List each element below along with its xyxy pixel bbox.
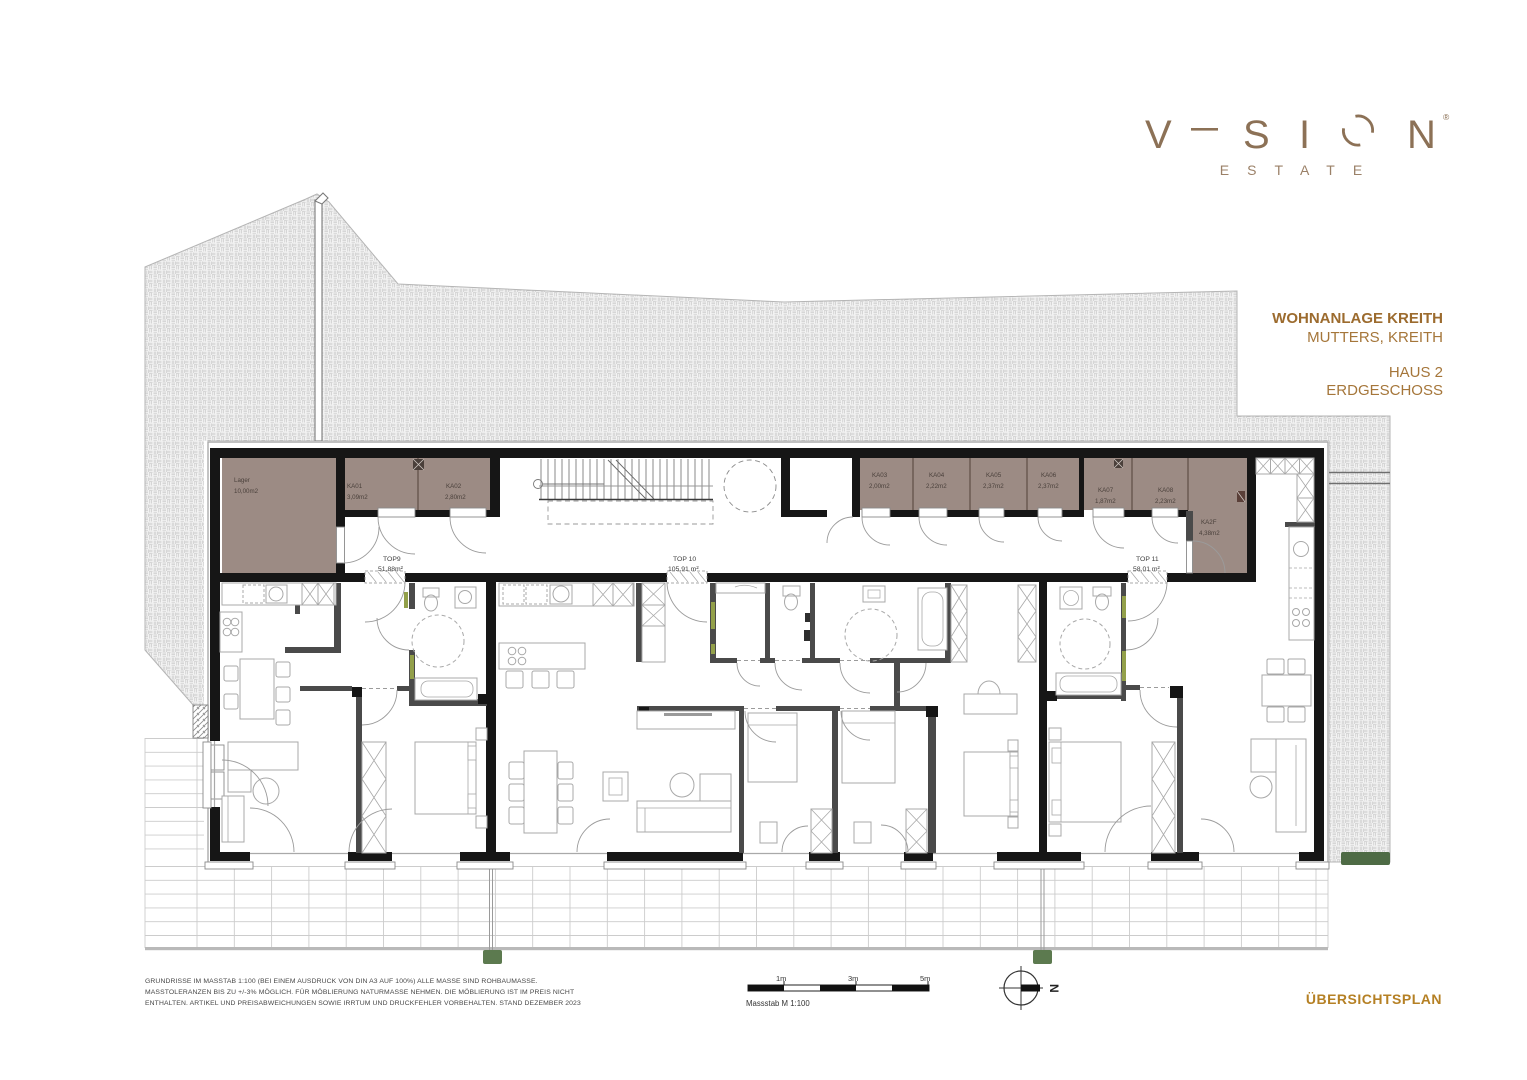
svg-text:2,80m2: 2,80m2	[445, 494, 466, 501]
svg-text:WOHNANLAGE KREITH: WOHNANLAGE KREITH	[1272, 310, 1443, 327]
svg-text:2,37m2: 2,37m2	[983, 483, 1004, 490]
svg-text:1,87m2: 1,87m2	[1095, 498, 1116, 505]
svg-text:I: I	[1299, 113, 1310, 157]
svg-text:Lager: Lager	[234, 477, 250, 484]
svg-text:N: N	[1407, 113, 1436, 157]
svg-text:KA06: KA06	[1041, 472, 1057, 479]
svg-text:KA07: KA07	[1098, 487, 1114, 494]
svg-text:3,09m2: 3,09m2	[347, 494, 368, 501]
svg-text:MUTTERS, KREITH: MUTTERS, KREITH	[1307, 329, 1443, 346]
svg-text:2,00m2: 2,00m2	[869, 483, 890, 490]
svg-text:58,01 m²: 58,01 m²	[1133, 566, 1161, 573]
svg-text:ERDGESCHOSS: ERDGESCHOSS	[1326, 382, 1443, 399]
svg-text:KA04: KA04	[929, 472, 945, 479]
svg-text:ÜBERSICHTSPLAN: ÜBERSICHTSPLAN	[1306, 991, 1442, 1007]
svg-text:KA2F: KA2F	[1201, 519, 1217, 526]
svg-text:Massstab M 1:100: Massstab M 1:100	[746, 999, 810, 1008]
svg-text:51,88m²: 51,88m²	[378, 566, 404, 573]
svg-text:ENTHALTEN. ARTIKEL UND PREISAB: ENTHALTEN. ARTIKEL UND PREISABWEICHUNGEN…	[145, 1000, 581, 1007]
svg-text:N: N	[1047, 984, 1061, 993]
svg-text:GRUNDRISSE IM MASSTAB 1:100 (B: GRUNDRISSE IM MASSTAB 1:100 (BEI EINEM A…	[145, 978, 538, 985]
svg-text:KA05: KA05	[986, 472, 1002, 479]
svg-text:3m: 3m	[848, 974, 858, 983]
svg-text:2,22m2: 2,22m2	[926, 483, 947, 490]
svg-text:5m: 5m	[920, 974, 930, 983]
svg-text:TOP9: TOP9	[383, 556, 401, 563]
svg-text:KA02: KA02	[446, 483, 462, 490]
svg-text:V: V	[1145, 113, 1172, 157]
svg-text:KA01: KA01	[347, 483, 363, 490]
svg-text:ESTATE: ESTATE	[1220, 162, 1380, 178]
svg-text:4,38m2: 4,38m2	[1199, 530, 1220, 537]
svg-text:KA08: KA08	[1158, 487, 1174, 494]
svg-text:®: ®	[1443, 112, 1450, 122]
svg-text:10,00m2: 10,00m2	[234, 488, 259, 495]
svg-text:HAUS 2: HAUS 2	[1389, 364, 1443, 381]
svg-text:1m: 1m	[776, 974, 786, 983]
svg-text:S: S	[1243, 113, 1270, 157]
svg-text:2,37m2: 2,37m2	[1038, 483, 1059, 490]
svg-text:KA03: KA03	[872, 472, 888, 479]
svg-text:TOP 11: TOP 11	[1136, 556, 1159, 563]
svg-text:TOP 10: TOP 10	[673, 556, 696, 563]
svg-text:105,91 m²: 105,91 m²	[668, 566, 699, 573]
svg-text:MASSTOLERANZEN BIS ZU +/-3% MÖ: MASSTOLERANZEN BIS ZU +/-3% MÖGLICH. FÜR…	[145, 988, 574, 996]
svg-text:2,23m2: 2,23m2	[1155, 498, 1176, 505]
